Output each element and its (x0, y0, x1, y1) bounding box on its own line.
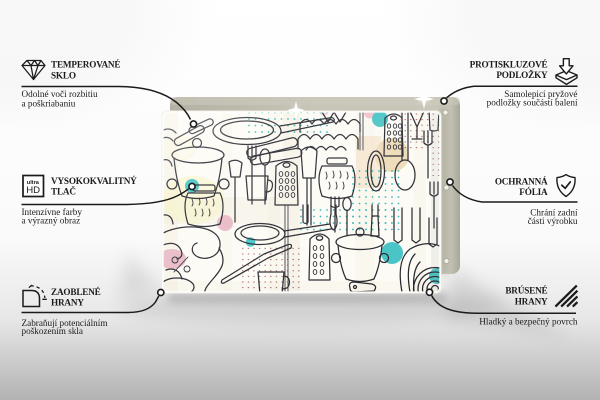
svg-text:Odolné voči rozbitiu: Odolné voči rozbitiu (22, 89, 98, 99)
svg-text:VYSOKOKVALITNÝ: VYSOKOKVALITNÝ (51, 176, 137, 186)
svg-text:TLAČ: TLAČ (51, 187, 76, 197)
svg-text:HRANY: HRANY (51, 298, 84, 308)
svg-text:OCHRANNÁ: OCHRANNÁ (495, 177, 548, 187)
svg-text:PODLOŽKY: PODLOŽKY (496, 70, 548, 80)
svg-text:podložky součástí balení: podložky součástí balení (487, 98, 578, 108)
svg-text:a výrazný obraz: a výrazný obraz (22, 216, 81, 226)
svg-text:BRÚSENÉ: BRÚSENÉ (505, 285, 547, 295)
svg-text:ZAOBLENÉ: ZAOBLENÉ (51, 287, 101, 297)
svg-text:a poškriabaniu: a poškriabaniu (22, 99, 76, 109)
svg-text:poškozením skla: poškozením skla (22, 326, 84, 336)
svg-text:HD: HD (26, 185, 40, 196)
svg-text:PROTISKLUZOVÉ: PROTISKLUZOVÉ (470, 59, 548, 69)
svg-text:HRANY: HRANY (515, 297, 548, 307)
svg-text:FÓLIA: FÓLIA (519, 187, 548, 197)
svg-text:SKLO: SKLO (51, 71, 76, 81)
svg-text:Hladký a bezpečný povrch: Hladký a bezpečný povrch (479, 317, 578, 327)
svg-text:části výrobku: části výrobku (528, 216, 578, 226)
svg-text:TEMPEROVANÉ: TEMPEROVANÉ (51, 60, 120, 70)
